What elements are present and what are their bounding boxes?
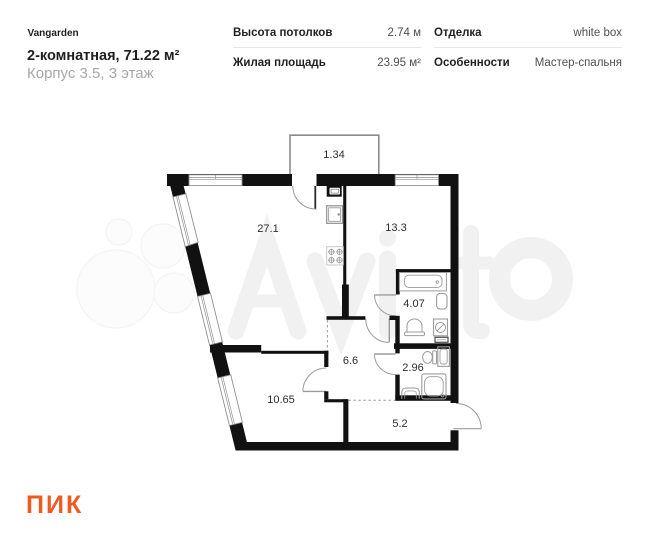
svg-text:6.6: 6.6 <box>343 355 358 367</box>
svg-text:1.34: 1.34 <box>323 149 344 161</box>
svg-text:4.07: 4.07 <box>403 298 424 310</box>
svg-text:5.2: 5.2 <box>392 418 407 430</box>
svg-text:13.3: 13.3 <box>385 222 406 234</box>
svg-text:10.65: 10.65 <box>267 394 295 406</box>
svg-text:27.1: 27.1 <box>257 223 278 235</box>
svg-text:2.96: 2.96 <box>402 362 423 374</box>
